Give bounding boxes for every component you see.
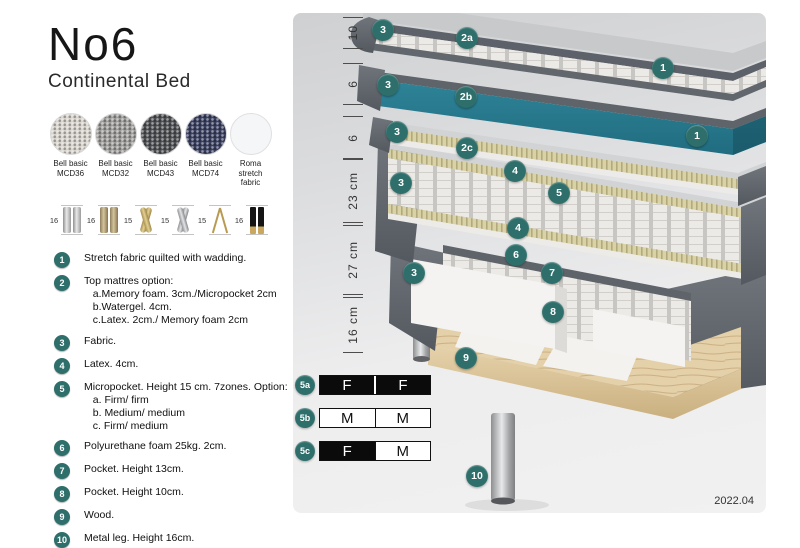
feature-item: 10 Metal leg. Height 16cm. [54, 532, 293, 548]
feature-item: 4 Latex. 4cm. [54, 358, 293, 374]
layer-marker: 9 [455, 347, 477, 369]
leg-icon [246, 205, 268, 235]
layer-marker: 4 [504, 160, 526, 182]
dimension-segment: 27 cm [343, 225, 363, 295]
firmness-row-5a: 5a F F [295, 375, 431, 395]
fabric-swatch-circle [50, 113, 92, 155]
leg-height-label: 16 [235, 216, 243, 225]
layer-marker: 7 [541, 262, 563, 284]
layer-marker: 3 [403, 262, 425, 284]
fabric-swatch-label: Bell basic MCD36 [48, 159, 93, 178]
feature-item: 1 Stretch fabric quilted with wadding. [54, 252, 293, 268]
layer-marker: 3 [386, 121, 408, 143]
info-column: No6 Continental Bed Bell basic MCD36 Bel… [0, 0, 293, 533]
firmness-row-5b: 5b M M [295, 408, 431, 428]
feature-number-badge: 6 [54, 440, 70, 456]
leg-height-label: 15 [124, 216, 132, 225]
layer-marker: 3 [390, 172, 412, 194]
dimension-segment: 6 [343, 63, 363, 105]
feature-number-badge: 7 [54, 463, 70, 479]
feature-text: Pocket. Height 10cm. [84, 486, 184, 502]
feature-item: 7 Pocket. Height 13cm. [54, 463, 293, 479]
layer-marker: 10 [466, 465, 488, 487]
feature-number-badge: 4 [54, 358, 70, 374]
layer-marker: 2a [456, 27, 478, 49]
leg-option: 15 [196, 200, 233, 240]
dimension-segment: 23 cm [343, 159, 363, 223]
feature-number-badge: 8 [54, 486, 70, 502]
feature-item: 6 Polyurethane foam 25kg. 2cm. [54, 440, 293, 456]
feature-text: Pocket. Height 13cm. [84, 463, 184, 479]
fabric-swatch: Bell basic MCD36 [48, 113, 93, 188]
leg-icon [172, 205, 194, 235]
fabric-swatch-label: Bell basic MCD74 [183, 159, 228, 178]
feature-item: 2 Top mattres option: a.Memory foam. 3cm… [54, 275, 293, 328]
layer-marker: 6 [505, 244, 527, 266]
feature-item: 3 Fabric. [54, 335, 293, 351]
leg-option: 16 [85, 200, 122, 240]
fabric-swatches: Bell basic MCD36 Bell basic MCD32 Bell b… [48, 113, 276, 188]
feature-text: Top mattres option: a.Memory foam. 3cm./… [84, 275, 277, 328]
layer-marker: 1 [652, 57, 674, 79]
dimension-text: 10 [346, 25, 360, 40]
feature-text: Wood. [84, 509, 114, 525]
firmness-cell: F [374, 376, 430, 394]
dimension-segment: 16 cm [343, 297, 363, 353]
firmness-cells: F M [319, 441, 431, 461]
layer-marker: 2c [456, 137, 478, 159]
layer-marker: 1 [686, 125, 708, 147]
leg-icon [61, 205, 83, 235]
layer-marker: 8 [542, 301, 564, 323]
product-title: No6 [48, 20, 293, 68]
feature-number-badge: 2 [54, 275, 70, 291]
firmness-tables: 5a F F 5b M M 5c F M [295, 375, 431, 474]
leg-option: 15 [122, 200, 159, 240]
fabric-swatch-circle [95, 113, 137, 155]
dimension-segment: 10 [343, 17, 363, 49]
feature-text: Latex. 4cm. [84, 358, 138, 374]
firmness-badge: 5b [295, 408, 315, 428]
layer-marker: 3 [377, 74, 399, 96]
leg-option: 15 [159, 200, 196, 240]
feature-number-badge: 10 [54, 532, 70, 548]
layer-marker: 3 [372, 19, 394, 41]
dimension-text: 6 [346, 134, 360, 142]
feature-text: Stretch fabric quilted with wadding. [84, 252, 246, 268]
fabric-swatch: Roma stretch fabric [228, 113, 273, 188]
fabric-swatch-label: Bell basic MCD32 [93, 159, 138, 178]
firmness-cell: M [375, 409, 431, 427]
leg-height-label: 16 [87, 216, 95, 225]
feature-text: Polyurethane foam 25kg. 2cm. [84, 440, 226, 456]
layer-marker: 2b [455, 86, 477, 108]
fabric-swatch-label: Roma stretch fabric [228, 159, 273, 188]
firmness-cell: M [320, 409, 375, 427]
leg-height-label: 16 [50, 216, 58, 225]
layer-marker: 4 [507, 217, 529, 239]
dimension-text: 27 cm [346, 241, 360, 279]
feature-text: Micropocket. Height 15 cm. 7zones. Optio… [84, 381, 288, 434]
feature-text: Fabric. [84, 335, 116, 351]
firmness-cell: F [320, 442, 375, 460]
bed-diagram-panel: 10 6 6 23 cm 27 cm 16 cm 32a132b32c13454… [293, 13, 766, 513]
firmness-badge: 5a [295, 375, 315, 395]
fabric-swatch: Bell basic MCD43 [138, 113, 183, 188]
firmness-cells: F F [319, 375, 431, 395]
feature-number-badge: 5 [54, 381, 70, 397]
dimension-text: 16 cm [346, 306, 360, 344]
fabric-swatch-circle [230, 113, 272, 155]
leg-icon [98, 205, 120, 235]
firmness-cell: M [375, 442, 431, 460]
firmness-row-5c: 5c F M [295, 441, 431, 461]
layer-marker: 5 [548, 182, 570, 204]
leg-icon [209, 205, 231, 235]
feature-item: 9 Wood. [54, 509, 293, 525]
leg-option: 16 [48, 200, 85, 240]
fabric-swatch: Bell basic MCD32 [93, 113, 138, 188]
leg-icon [135, 205, 157, 235]
leg-option: 16 [233, 200, 270, 240]
leg-options: 16 16 15 15 15 16 [48, 200, 274, 240]
firmness-cell: F [320, 376, 374, 394]
dimension-text: 6 [346, 80, 360, 88]
feature-text: Metal leg. Height 16cm. [84, 532, 194, 548]
feature-number-badge: 3 [54, 335, 70, 351]
fabric-swatch-circle [140, 113, 182, 155]
dimension-text: 23 cm [346, 172, 360, 210]
leg-height-label: 15 [198, 216, 206, 225]
feature-number-badge: 1 [54, 252, 70, 268]
fabric-swatch: Bell basic MCD74 [183, 113, 228, 188]
feature-number-badge: 9 [54, 509, 70, 525]
dimension-segment: 6 [343, 116, 363, 159]
feature-item: 8 Pocket. Height 10cm. [54, 486, 293, 502]
version-label: 2022.04 [714, 495, 754, 507]
feature-item: 5 Micropocket. Height 15 cm. 7zones. Opt… [54, 381, 293, 434]
leg-height-label: 15 [161, 216, 169, 225]
product-subtitle: Continental Bed [48, 71, 293, 93]
firmness-badge: 5c [295, 441, 315, 461]
feature-list: 1 Stretch fabric quilted with wadding. 2… [54, 252, 293, 548]
fabric-swatch-label: Bell basic MCD43 [138, 159, 183, 178]
page: { "header": { "title": "No6", "subtitle"… [0, 0, 800, 533]
firmness-cells: M M [319, 408, 431, 428]
fabric-swatch-circle [185, 113, 227, 155]
